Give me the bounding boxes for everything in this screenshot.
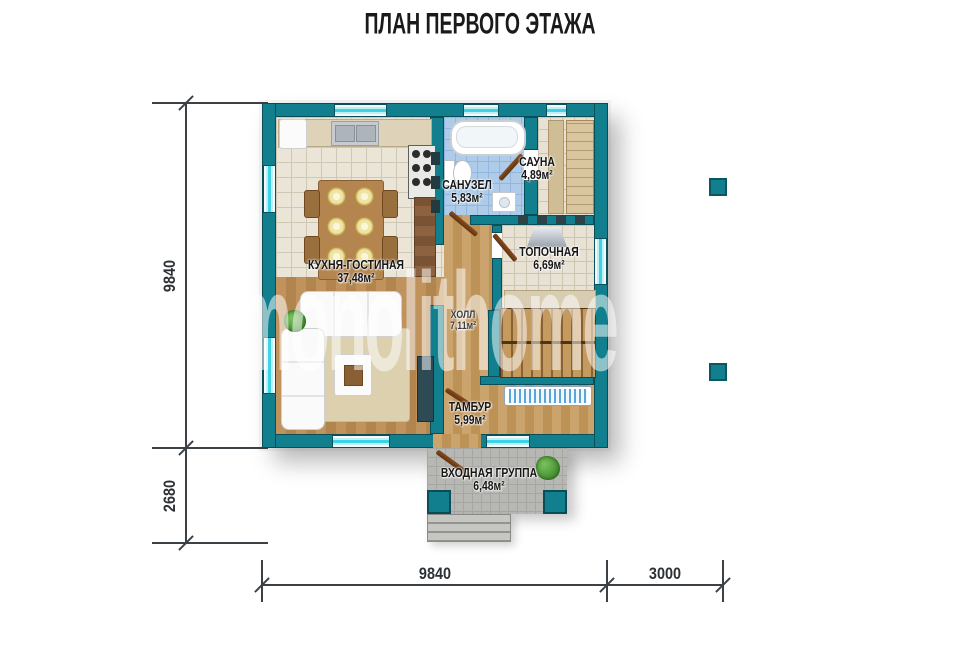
plant-living: [284, 310, 306, 332]
room-label-kitchen-living: КУХНЯ-ГОСТИНАЯ 37,48м²: [308, 258, 404, 284]
room-area: 7,11м²: [450, 321, 476, 332]
plate: [327, 187, 346, 206]
entrance-door-opening: [433, 434, 481, 448]
room-label-hall: ХОЛЛ 7,11м²: [450, 310, 476, 332]
stairs-landing-divider: [501, 341, 595, 344]
dim-line-bottom: [262, 584, 723, 586]
kitchen-sink: [331, 121, 379, 146]
plate: [327, 217, 346, 236]
room-label-vestibule: ТАМБУР 5,99м²: [449, 400, 492, 426]
plate: [355, 217, 374, 236]
boiler-counter: [504, 290, 596, 310]
chair: [382, 190, 398, 218]
dim-ext-lowest: [152, 542, 268, 544]
floor-plan-page: ПЛАН ПЕРВОГО ЭТАЖА: [0, 0, 960, 669]
wall-bathroom-sauna-lower: [524, 180, 538, 215]
wall-left: [262, 103, 276, 448]
hall-floor: [444, 215, 492, 385]
wall-hall-boiler-stub: [492, 225, 502, 233]
teal-marker-top: [709, 178, 727, 196]
window-left-living: [263, 337, 276, 394]
stairs: [500, 308, 596, 378]
bathtub: [450, 120, 526, 156]
dim-label-left-main: 9840: [160, 260, 180, 292]
room-area: 6,69м²: [519, 258, 579, 271]
burner: [412, 164, 420, 172]
burner: [412, 150, 420, 158]
burner: [423, 150, 431, 158]
room-area: 5,83м²: [442, 191, 492, 204]
wall-appliance: [431, 152, 440, 165]
entrance-pillar-left: [427, 490, 451, 514]
wall-appliance: [431, 176, 440, 189]
window-left-kitchen: [263, 165, 276, 213]
room-area: 4,89м²: [519, 168, 555, 181]
chair: [304, 190, 320, 218]
window-bottom-vestibule: [486, 435, 530, 448]
burner: [423, 164, 431, 172]
dim-label-bottom-main: 9840: [419, 564, 451, 584]
window-bottom-living: [332, 435, 390, 448]
radiator: [504, 386, 592, 406]
bathtub-basin: [456, 126, 518, 148]
dim-ext-top: [152, 102, 268, 104]
dim-ext-middle: [152, 447, 268, 449]
dim-line-left-lower: [185, 448, 187, 544]
window-top-bathroom: [463, 104, 499, 117]
wall-appliance: [431, 200, 440, 213]
room-area: 5,99м²: [449, 413, 492, 426]
sauna-bench: [566, 120, 594, 214]
window-top-sauna: [546, 104, 567, 117]
dim-line-left-main: [185, 103, 187, 448]
room-label-entrance-group: ВХОДНАЯ ГРУППА 6,48м²: [441, 466, 537, 492]
room-area: 37,48м²: [308, 271, 404, 284]
sink-basin: [335, 125, 355, 142]
plant-entrance: [536, 456, 560, 480]
fridge: [279, 119, 307, 149]
room-label-bathroom: САНУЗЕЛ 5,83м²: [442, 178, 492, 204]
window-top-kitchen: [334, 104, 387, 117]
radiator-fins: [509, 389, 587, 403]
wall-hall-boiler: [492, 258, 502, 310]
room-area: 6,48м²: [441, 479, 537, 492]
wall-stair-stringer: [488, 310, 500, 378]
washbasin: [492, 192, 516, 212]
page-title: ПЛАН ПЕРВОГО ЭТАЖА: [134, 8, 825, 41]
dim-label-bottom-right: 3000: [649, 564, 681, 584]
sink-basin-2: [356, 125, 376, 142]
wall-bathroom-sauna-upper: [524, 117, 538, 150]
dim-label-left-lower: 2680: [160, 480, 180, 512]
entrance-pillar-right: [543, 490, 567, 514]
washbasin-bowl: [499, 197, 510, 208]
room-label-boiler-room: ТОПОЧНАЯ 6,69м²: [519, 245, 579, 271]
boiler-equipment-row: [518, 216, 594, 224]
coffee-table-inset: [344, 365, 363, 386]
plate: [355, 187, 374, 206]
tv-console: [417, 356, 434, 422]
burner: [412, 178, 420, 186]
sofa-vertical: [281, 328, 325, 430]
teal-marker-bottom: [709, 363, 727, 381]
entrance-steps: [427, 514, 511, 542]
coffee-table: [334, 354, 372, 396]
burner: [423, 178, 431, 186]
room-label-sauna: САУНА 4,89м²: [519, 155, 555, 181]
window-right-boiler: [594, 238, 607, 285]
